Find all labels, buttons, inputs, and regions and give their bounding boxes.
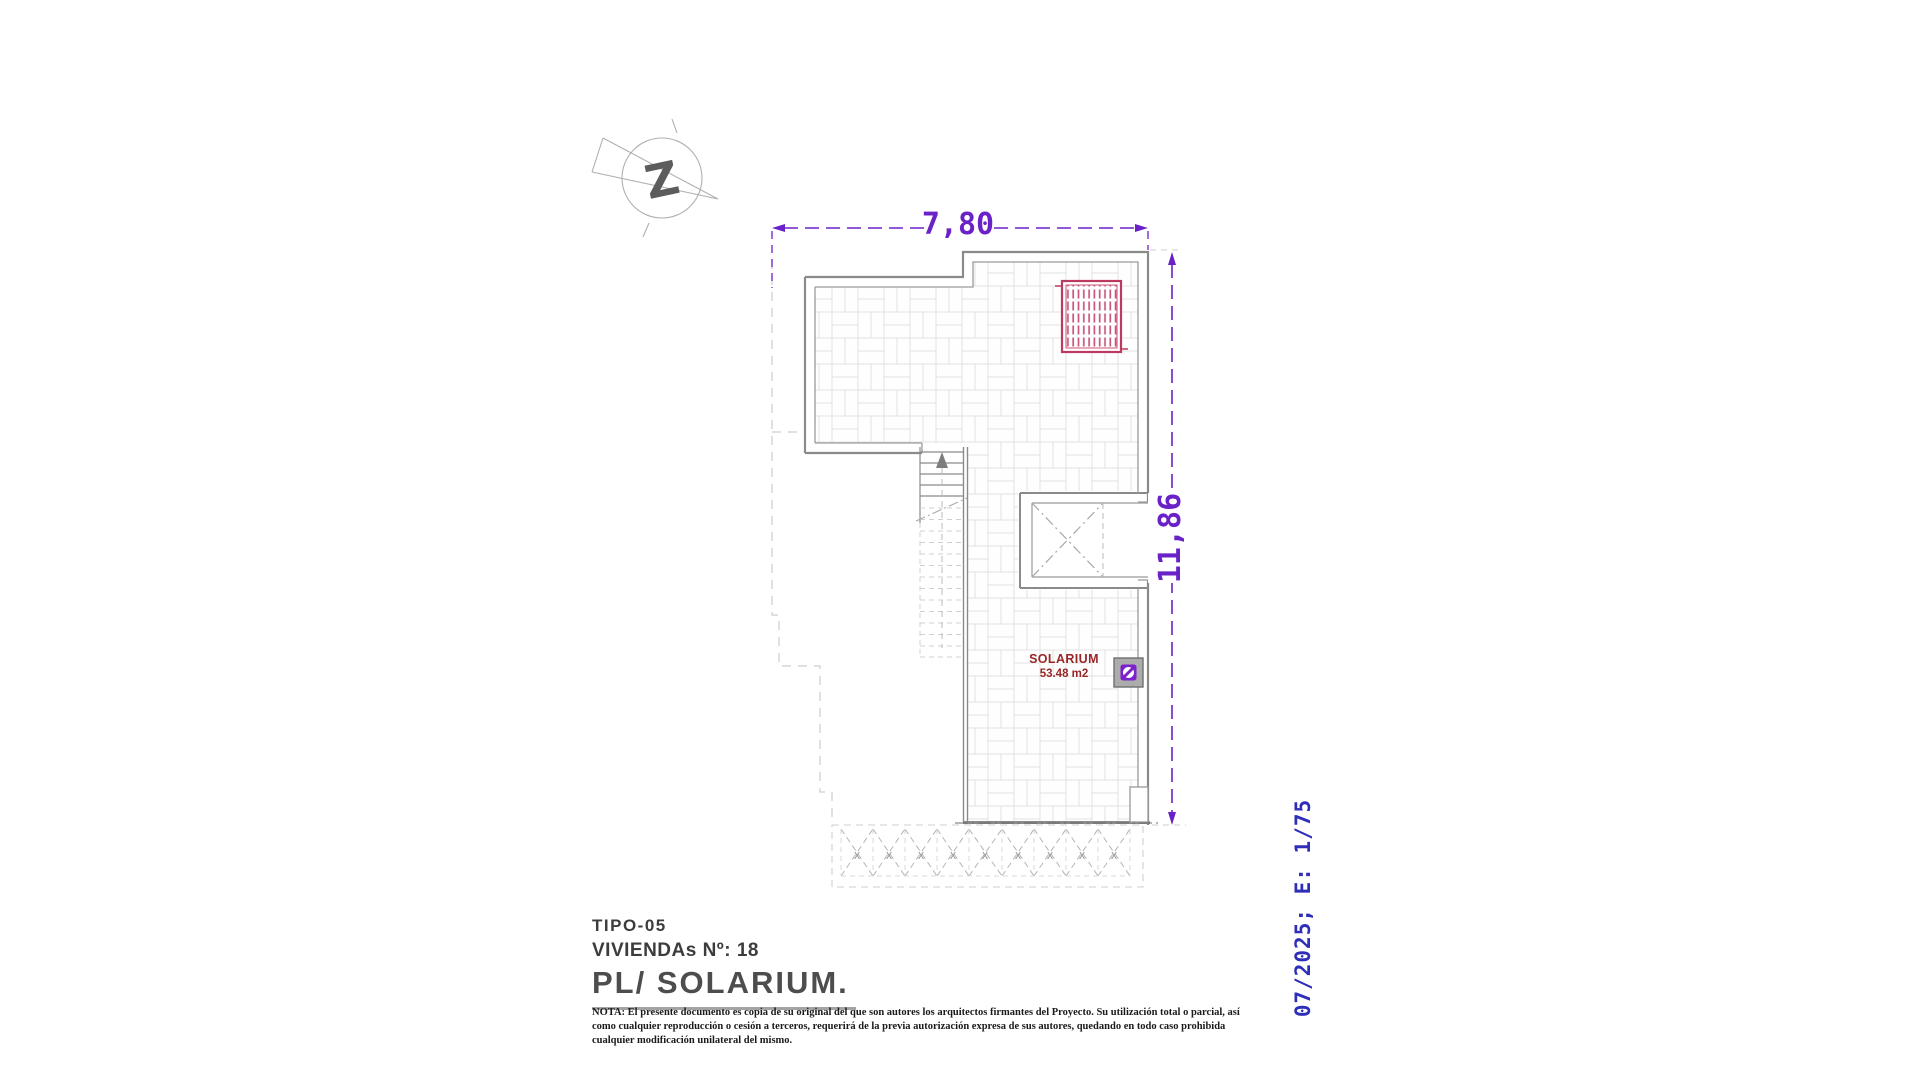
title-block: TIPO-05 VIVIENDAs Nº: 18 PL/ SOLARIUM. — [592, 916, 856, 1010]
void-shaft — [1018, 491, 1150, 590]
dim-arrow-right — [1135, 224, 1148, 232]
nota-line: cualquier modificación unilateral del mi… — [592, 1034, 1108, 1048]
nota-disclaimer: NOTA: El presente documento es copia de … — [592, 1006, 1108, 1048]
pergola-mark: X — [886, 851, 892, 862]
stairs — [916, 447, 967, 657]
room-area: 53.48 m2 — [1040, 668, 1089, 680]
pergola-mark: X — [1111, 851, 1117, 862]
pergola-strip: X X X X X X X X X — [832, 825, 1143, 887]
plan-title: PL/ SOLARIUM. — [592, 965, 856, 1001]
corner-pillar — [1130, 787, 1148, 822]
pergola-mark: X — [1079, 851, 1085, 862]
pergola-mark: X — [950, 851, 956, 862]
dim-width-label: 7,80 — [922, 207, 994, 242]
dwelling-label: VIVIENDAs Nº: 18 — [592, 940, 856, 962]
arrow-up-icon — [936, 452, 948, 468]
stair-direction-arrow — [936, 452, 948, 648]
dim-height-label: 11,86 — [1153, 493, 1188, 583]
dim-arrow-up — [1168, 252, 1176, 265]
north-arrow-icon: Z — [640, 150, 684, 210]
solar-panel — [1055, 281, 1128, 352]
dimension-right: 11,86 — [1148, 250, 1188, 825]
pergola-mark: X — [1047, 851, 1053, 862]
scale-date-note: 07/2025; E: 1/75 — [1291, 799, 1315, 1017]
pergola-mark: X — [918, 851, 924, 862]
no-access-icon — [1114, 658, 1143, 687]
type-label: TIPO-05 — [592, 916, 856, 936]
pergola-mark: X — [1015, 851, 1021, 862]
nota-line: como cualquier reproducción o cesión a t… — [592, 1020, 1108, 1034]
drawing-sheet: Z — [0, 0, 1920, 1080]
compass: Z — [592, 119, 718, 237]
pergola-mark: X — [982, 851, 988, 862]
room-name: SOLARIUM — [1029, 652, 1099, 666]
stair-wall — [964, 447, 968, 822]
dim-arrow-left — [772, 224, 785, 232]
dim-arrow-down — [1168, 812, 1176, 825]
floor-plan-canvas: Z — [0, 0, 1920, 1080]
pergola-mark: X — [854, 851, 860, 862]
nota-line: NOTA: El presente documento es copia de … — [592, 1006, 1108, 1020]
